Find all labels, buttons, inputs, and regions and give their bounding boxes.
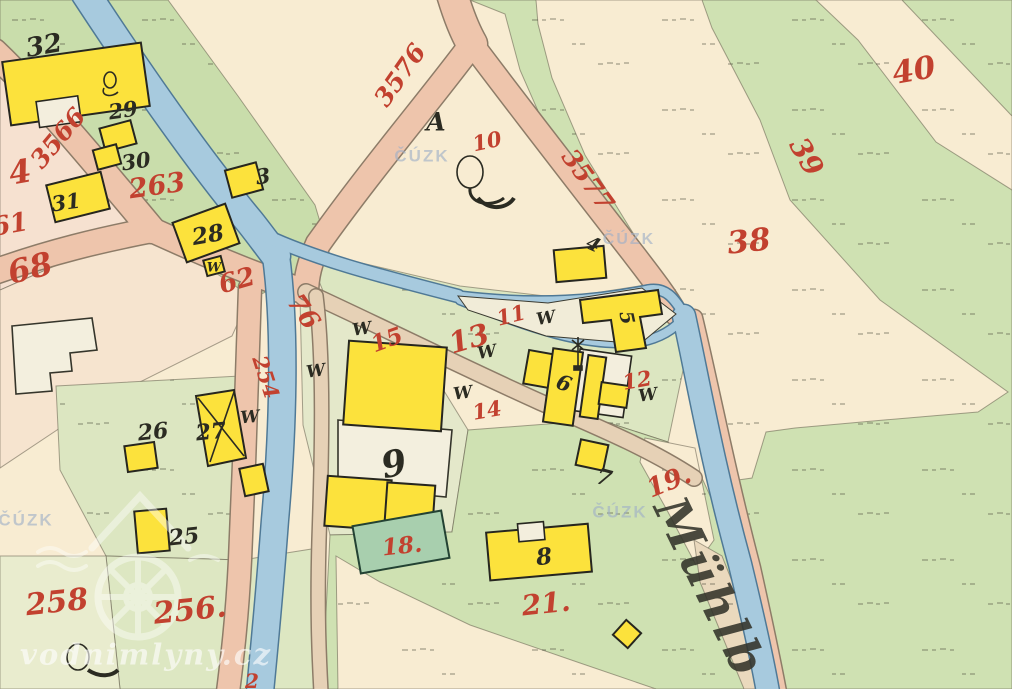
parcel-number-red: 14 (471, 397, 503, 423)
parcel-number-red: 13 (446, 319, 493, 358)
w-mark: W (351, 320, 372, 339)
house-number-black: 8 (535, 545, 553, 570)
parcel-number-red: 62 (216, 264, 258, 299)
watermark-cuzk: ČÚZK (0, 512, 54, 529)
parcel-number-red: 10 (471, 128, 504, 155)
parcel-number-red: 68 (5, 247, 56, 289)
parcel-number-red: 11 (494, 301, 527, 328)
parcel-number-red: 254 (249, 353, 283, 401)
w-mark: W (535, 309, 557, 329)
parcel-number-red: 61 (0, 209, 30, 241)
parcel-number-red: 40 (890, 52, 938, 90)
parcel-number-red: 2 (245, 671, 259, 689)
house-number-black: 31 (50, 190, 82, 215)
parcel-number-red: 38 (726, 224, 772, 259)
cadastral-map-view: 3566461682633576103577403938627625415131… (0, 0, 1012, 689)
house-number-black: 7 (594, 465, 614, 490)
parcel-number-red: 15 (368, 324, 406, 357)
watermark-cuzk: ČÚZK (394, 148, 449, 165)
parcel-number-red: 76 (282, 290, 324, 335)
house-number-black: 28 (190, 221, 226, 249)
parcel-number-red: 3566 (26, 103, 90, 172)
river-name-label: Mühlb (646, 490, 775, 686)
parcel-number-red: 263 (127, 169, 187, 204)
house-number-black: 26 (137, 419, 170, 444)
parcel-number-red: 3576 (370, 39, 430, 110)
parcel-number-red: 19. (643, 461, 695, 502)
parcel-number-red: 3577 (557, 145, 618, 216)
parcel-number-red: 21. (520, 588, 571, 621)
parcel-number-red: 12 (621, 367, 653, 393)
w-mark: W (305, 362, 326, 381)
house-number-black: 4 (583, 234, 603, 257)
parcel-number-red: 258 (24, 585, 89, 621)
house-number-black: 9 (378, 444, 410, 484)
w-mark: W (240, 409, 261, 428)
watermark-cuzk: ČÚZK (603, 232, 655, 248)
house-number-black: 5 (615, 310, 636, 327)
watermark-site: vodnimlyny.cz (20, 641, 272, 670)
map-labels-layer: 3566461682633576103577403938627625415131… (0, 0, 1012, 689)
house-number-black: 32 (24, 30, 64, 62)
w-mark: W (207, 262, 222, 275)
w-mark: W (452, 384, 473, 403)
parcel-number-red: 256. (152, 592, 228, 629)
house-number-black: A (426, 110, 445, 135)
parcel-number-red: 39 (784, 133, 828, 181)
parcel-number-red: 4 (6, 154, 33, 189)
house-number-black: 27 (195, 419, 228, 444)
house-number-black: 3 (254, 165, 271, 188)
watermark-cuzk: ČÚZK (592, 504, 647, 521)
house-number-black: 29 (107, 98, 139, 123)
house-number-black: 30 (120, 149, 152, 174)
parcel-number-red: 18. (381, 532, 423, 559)
w-mark: W (476, 343, 498, 363)
w-mark: W (637, 386, 658, 405)
house-number-black: 6 (554, 371, 575, 396)
house-number-black: 25 (168, 524, 201, 549)
